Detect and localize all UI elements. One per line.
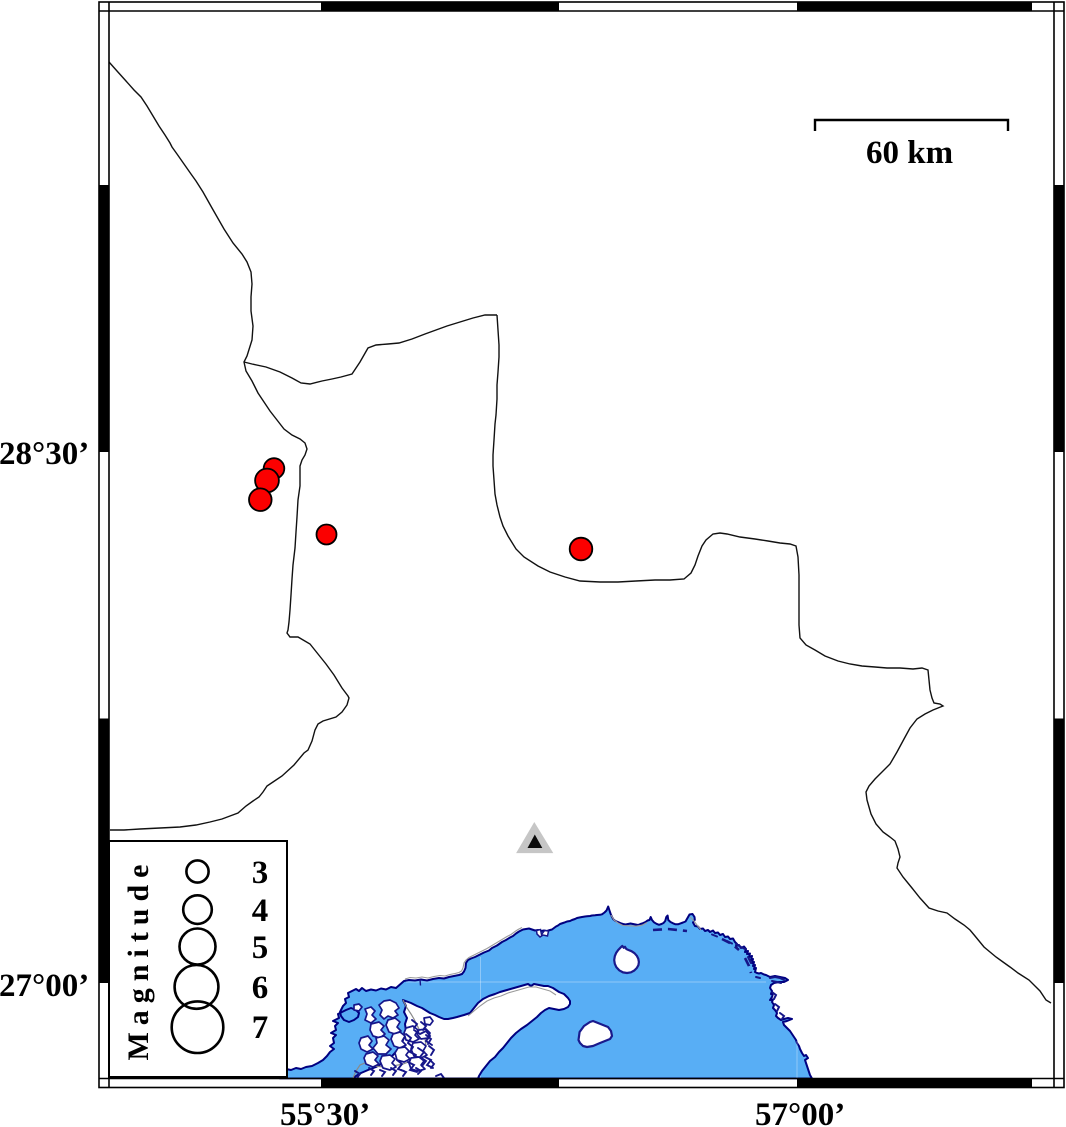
svg-text:4: 4 <box>252 893 269 929</box>
svg-text:6: 6 <box>252 970 269 1006</box>
svg-text:Magnitude: Magnitude <box>122 857 155 1060</box>
svg-text:5: 5 <box>252 930 269 966</box>
svg-text:57°00’: 57°00’ <box>755 1097 845 1127</box>
svg-text:55°30’: 55°30’ <box>280 1097 370 1127</box>
svg-text:7: 7 <box>252 1010 269 1046</box>
svg-text:27°00’: 27°00’ <box>0 968 89 1004</box>
svg-text:3: 3 <box>252 855 269 891</box>
svg-text:60 km: 60 km <box>866 135 953 171</box>
svg-text:28°30’: 28°30’ <box>0 436 89 472</box>
